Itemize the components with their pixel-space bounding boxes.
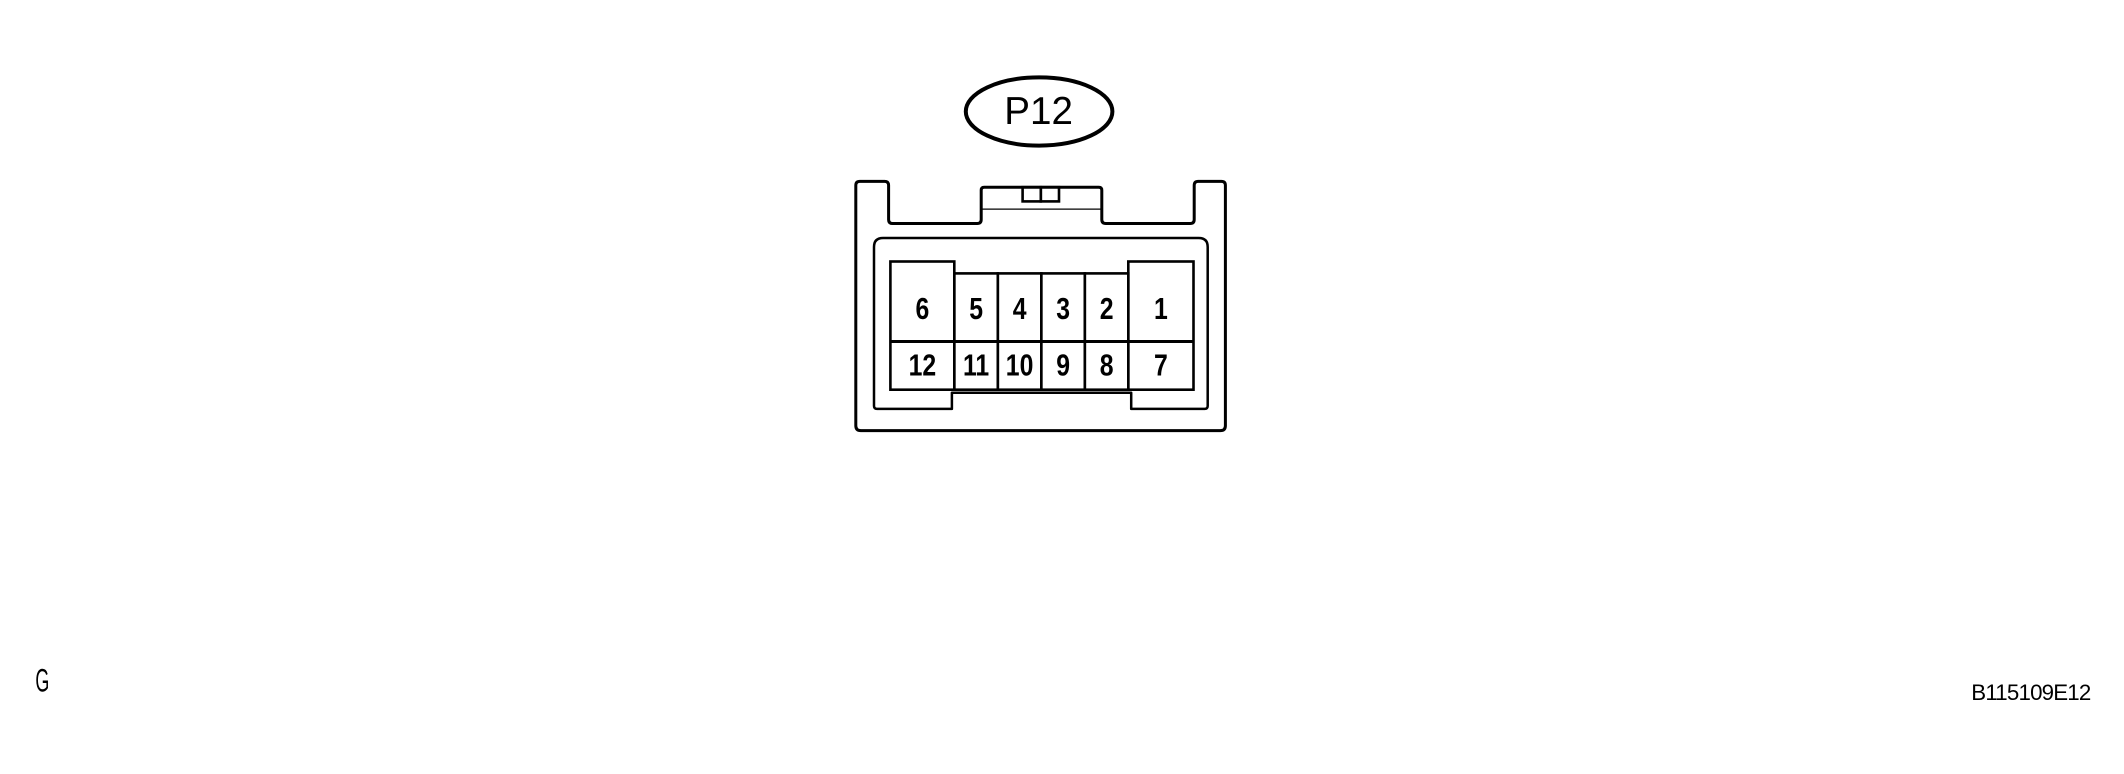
svg-text:5: 5: [969, 291, 983, 325]
svg-text:6: 6: [916, 291, 930, 325]
svg-text:2: 2: [1100, 291, 1114, 325]
svg-text:11: 11: [963, 348, 989, 382]
svg-text:B115109E12: B115109E12: [1971, 680, 2091, 705]
svg-text:7: 7: [1154, 348, 1168, 382]
svg-text:1: 1: [1154, 291, 1168, 325]
svg-text:12: 12: [909, 348, 937, 382]
svg-text:G: G: [35, 665, 49, 700]
svg-text:8: 8: [1100, 348, 1114, 382]
svg-text:10: 10: [1006, 348, 1034, 382]
svg-text:P12: P12: [1004, 90, 1073, 133]
svg-text:9: 9: [1056, 348, 1070, 382]
svg-text:3: 3: [1056, 291, 1070, 325]
svg-text:4: 4: [1013, 291, 1027, 325]
